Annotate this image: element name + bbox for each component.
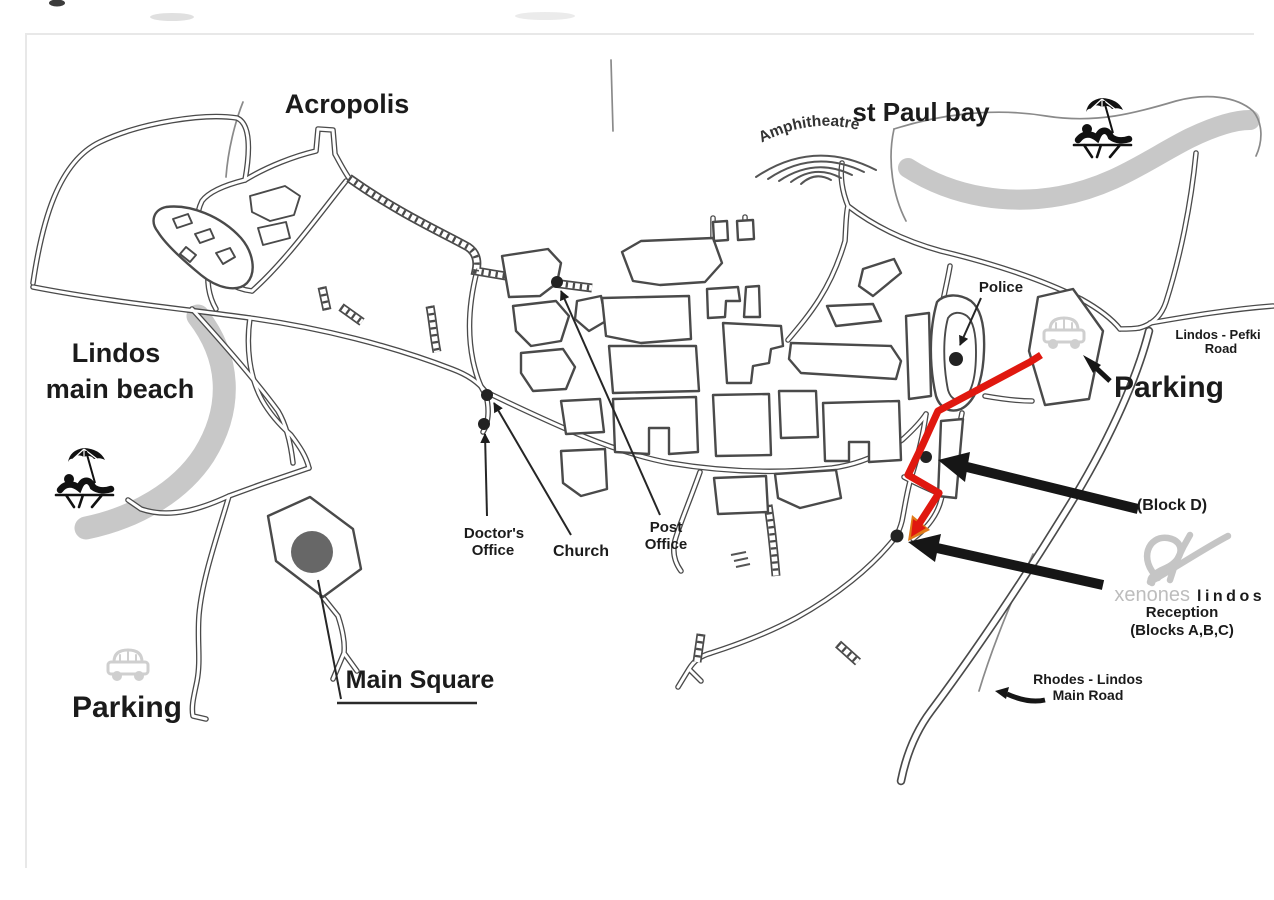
label-main-square: Main Square bbox=[346, 666, 495, 694]
town-block bbox=[823, 401, 901, 462]
doctors-dot bbox=[478, 418, 490, 430]
label-acropolis: Acropolis bbox=[285, 89, 410, 119]
label-post-office-1: Post bbox=[650, 519, 683, 536]
label-rhodes-road-2: Main Road bbox=[1053, 687, 1124, 703]
xenones-lindos-logo-icon bbox=[1147, 535, 1228, 583]
rhodes-road-arrow-shaft bbox=[1007, 694, 1045, 701]
main-square-circle bbox=[291, 531, 333, 573]
label-block-d: (Block D) bbox=[1137, 497, 1207, 514]
lindos-map: Acropolis st Paul bay Amphitheatre Lindo… bbox=[0, 0, 1274, 900]
road bbox=[678, 538, 895, 687]
label-post-office-2: Office bbox=[645, 536, 688, 553]
label-lindos-main-beach-2: main beach bbox=[46, 374, 195, 404]
main-square-leader-line bbox=[318, 580, 341, 699]
town-block bbox=[779, 391, 818, 438]
town-block bbox=[906, 313, 931, 399]
town-block bbox=[827, 304, 881, 326]
label-lindos-main-beach-1: Lindos bbox=[72, 338, 161, 368]
label-amphitheatre: Amphitheatre bbox=[756, 113, 862, 146]
town-block bbox=[744, 286, 760, 317]
cliff-line bbox=[611, 60, 613, 131]
label-parking-left: Parking bbox=[72, 691, 182, 724]
label-amphitheatre-text: Amphitheatre bbox=[756, 113, 862, 146]
label-church: Church bbox=[553, 543, 609, 560]
town-block bbox=[561, 449, 607, 496]
acropolis-building bbox=[258, 222, 290, 245]
church-leader-arrow bbox=[494, 403, 571, 535]
church-dot bbox=[481, 389, 493, 401]
label-rhodes-road-1: Rhodes - Lindos bbox=[1033, 671, 1143, 687]
road bbox=[192, 496, 229, 719]
label-st-paul-bay: st Paul bay bbox=[852, 97, 990, 127]
town-block bbox=[622, 238, 722, 285]
label-doctors-office-1: Doctor's bbox=[464, 525, 524, 542]
town-block bbox=[561, 399, 604, 434]
label-reception: Reception bbox=[1146, 604, 1219, 621]
label-parking-right: Parking bbox=[1114, 371, 1224, 404]
police-dot bbox=[949, 352, 963, 366]
amphitheatre-arcs-icon bbox=[756, 156, 876, 184]
acropolis-building bbox=[250, 186, 300, 221]
town-block bbox=[609, 346, 699, 393]
label-pefki-road-2: Road bbox=[1205, 341, 1238, 356]
label-doctors-office-2: Office bbox=[472, 542, 515, 559]
town-block bbox=[502, 249, 561, 297]
label-police: Police bbox=[979, 279, 1023, 296]
rhodes-road-arrow-head bbox=[995, 687, 1009, 699]
town-block bbox=[789, 343, 901, 379]
cliff-line bbox=[226, 102, 243, 177]
reception-dot bbox=[891, 530, 904, 543]
town-block bbox=[723, 323, 783, 383]
town-block bbox=[707, 287, 740, 318]
label-blocks-abc: (Blocks A,B,C) bbox=[1130, 622, 1234, 639]
doctors-leader-arrow bbox=[485, 434, 487, 516]
label-brand-xenones: xenones bbox=[1114, 584, 1190, 606]
st-paul-bay-beach-strip bbox=[908, 120, 1250, 200]
town-block bbox=[713, 221, 728, 241]
town-block bbox=[602, 296, 691, 343]
post-office-dot bbox=[551, 276, 563, 288]
sunbather-umbrella-icon bbox=[56, 448, 113, 507]
town-block bbox=[859, 259, 901, 296]
sunbather-umbrella-icon bbox=[1074, 98, 1131, 157]
label-pefki-road-1: Lindos - Pefki bbox=[1175, 327, 1260, 342]
town-block bbox=[613, 397, 698, 454]
town-block bbox=[521, 349, 575, 391]
town-block bbox=[737, 220, 754, 240]
town-block bbox=[513, 301, 569, 346]
block-d-arrow-shaft bbox=[967, 467, 1138, 509]
steps-mark bbox=[731, 552, 750, 567]
town-block bbox=[714, 476, 768, 514]
town-block bbox=[775, 470, 841, 508]
car-parking-icon bbox=[108, 650, 148, 680]
acropolis-enclosure bbox=[154, 207, 253, 289]
town-block bbox=[713, 394, 771, 456]
label-brand-lindos: lindos bbox=[1197, 588, 1265, 605]
